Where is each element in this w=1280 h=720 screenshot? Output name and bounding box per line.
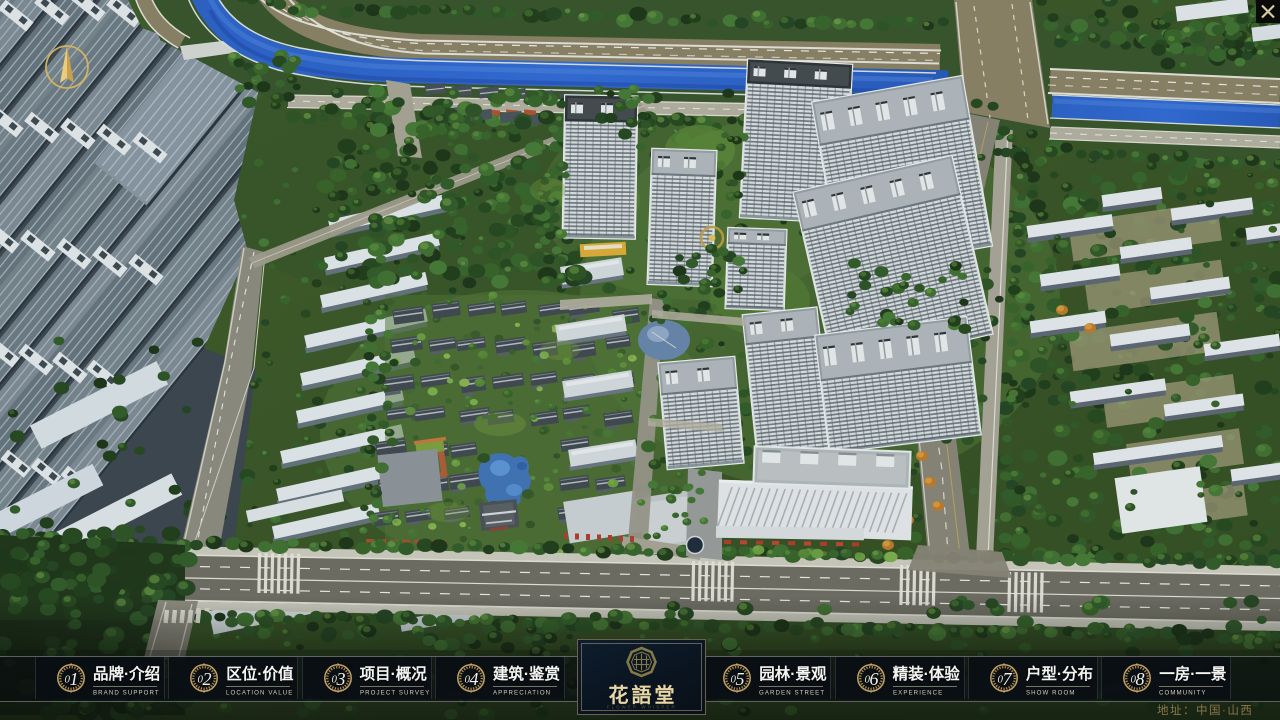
svg-text:1: 1 [70, 669, 79, 689]
svg-text:8: 8 [1136, 669, 1145, 689]
svg-text:7: 7 [1002, 669, 1012, 689]
svg-text:3: 3 [335, 669, 345, 689]
svg-text:2: 2 [203, 669, 212, 689]
svg-text:6: 6 [869, 669, 878, 689]
svg-text:5: 5 [736, 669, 745, 689]
svg-text:4: 4 [469, 669, 478, 689]
